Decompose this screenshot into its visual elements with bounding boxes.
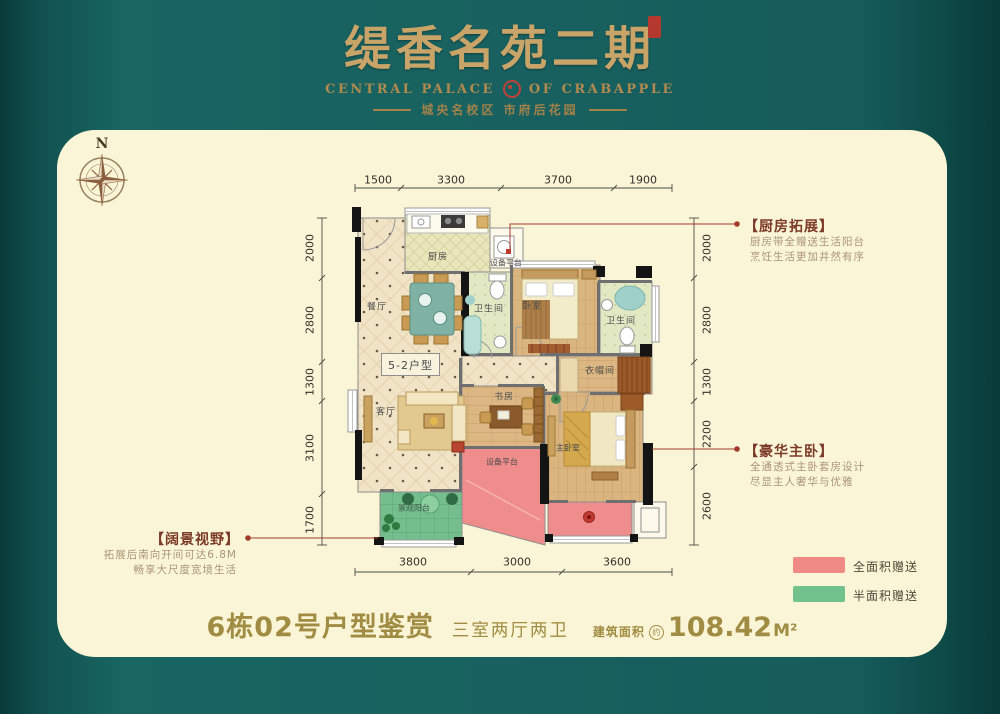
room-label-cloak: 衣帽间 <box>585 364 615 377</box>
callout-view-line2: 畅享大尺度宽境生活 <box>134 562 238 577</box>
dim-right-1: 2000 <box>701 234 714 262</box>
footer-area-label: 建筑面积 <box>593 623 645 640</box>
footer-area-value: 108.42 <box>668 612 772 643</box>
dim-left-2: 2800 <box>304 306 317 334</box>
dim-left-1: 2000 <box>304 234 317 262</box>
dim-top-2: 3300 <box>437 174 465 187</box>
room-label-living: 客厅 <box>376 405 396 418</box>
compass-north-label: N <box>90 136 114 152</box>
room-label-bath2: 卫生间 <box>606 314 636 327</box>
dim-top-1: 1500 <box>364 174 392 187</box>
room-label-kitchen: 厨房 <box>428 250 448 263</box>
compass-icon <box>76 154 128 206</box>
footer-area-unit: M² <box>773 621 797 641</box>
callout-kitchen-title: 【厨房拓展】 <box>744 216 834 236</box>
room-label-bath1: 卫生间 <box>474 302 504 315</box>
room-label-equip-mid: 设备平台 <box>486 457 518 468</box>
dim-left-3: 1300 <box>304 368 317 396</box>
dim-right-3: 1300 <box>701 368 714 396</box>
poster: 缇香名苑二期 CENTRAL PALACE OF CRABAPPLE 城央名校区… <box>0 0 1000 714</box>
callout-kitchen-line1: 厨房带全赠送生活阳台 <box>750 234 865 249</box>
legend-label-full: 全面积赠送 <box>853 558 918 575</box>
callout-master-title: 【豪华主卧】 <box>744 441 834 461</box>
dim-bottom-3: 3600 <box>603 556 631 569</box>
callout-view-line1: 拓展后南向开间可达6.8M <box>104 547 237 562</box>
dim-top-3: 3700 <box>544 174 572 187</box>
room-label-study: 书房 <box>494 390 514 403</box>
footer: 6栋02号户型鉴赏 三室两厅两卫 建筑面积 约 108.42 M² <box>57 605 947 644</box>
legend-swatch-half <box>793 586 845 602</box>
footer-unit-title: 6栋02号户型鉴赏 <box>207 605 434 644</box>
dim-bottom-1: 3800 <box>399 556 427 569</box>
footer-approx-badge: 约 <box>649 625 664 640</box>
callout-master-line1: 全通透式主卧套房设计 <box>750 459 865 474</box>
callout-master-line2: 尽显主人奢华与优雅 <box>750 474 854 489</box>
room-label-dining: 餐厅 <box>367 300 387 313</box>
room-label-bedroom: 卧室 <box>522 299 542 312</box>
legend-label-half: 半面积赠送 <box>853 587 918 604</box>
dim-top-4: 1900 <box>629 174 657 187</box>
dim-left-4: 3100 <box>304 434 317 462</box>
callout-kitchen-line2: 烹饪生活更加井然有序 <box>750 249 865 264</box>
legend-swatch-full <box>793 557 845 573</box>
dim-bottom-2: 3000 <box>503 556 531 569</box>
room-label-equip-top: 设备平台 <box>490 258 522 269</box>
dim-right-5: 2600 <box>701 492 714 520</box>
dim-right-2: 2800 <box>701 306 714 334</box>
dim-left-5: 1700 <box>304 506 317 534</box>
unit-label-box: 5-2户型 <box>381 353 440 376</box>
callout-view-title: 【阔景视野】 <box>150 529 240 549</box>
footer-layout: 三室两厅两卫 <box>452 617 569 642</box>
room-label-master: 主卧室 <box>556 443 580 454</box>
room-label-balcony: 景观阳台 <box>398 503 430 514</box>
dim-right-4: 2200 <box>701 420 714 448</box>
